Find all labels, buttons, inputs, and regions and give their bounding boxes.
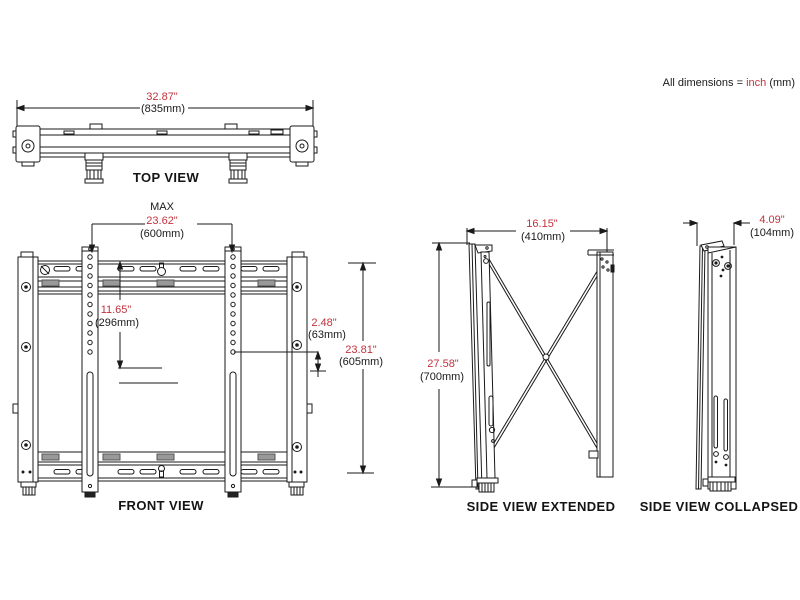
dim-top-width-mm: (835mm) [141, 103, 185, 115]
dim-col-depth-mm: (104mm) [750, 227, 794, 239]
dim-front-max-prefix: MAX [150, 201, 174, 213]
top-view-label: TOP VIEW [133, 172, 199, 184]
dim-ext-depth-inch: 16.15" [526, 218, 557, 230]
dim-ext-height-mm: (700mm) [420, 371, 464, 383]
technical-drawing-page: All dimensions = inch (mm) 32.87" (835mm… [0, 0, 800, 600]
dim-front-loweroffset-inch: 2.48" [311, 317, 336, 329]
dim-front-holeheight-inch: 11.65" [101, 304, 132, 316]
dim-ext-height-inch: 27.58" [427, 358, 458, 370]
dimensions-note: All dimensions = inch (mm) [663, 77, 795, 89]
dim-top-width-inch: 32.87" [146, 91, 177, 103]
dim-front-max-mm: (600mm) [140, 228, 184, 240]
dim-front-loweroffset-mm: (63mm) [308, 329, 346, 341]
dim-front-totalheight-inch: 23.81" [345, 344, 376, 356]
dim-ext-depth-mm: (410mm) [521, 231, 565, 243]
note-prefix: All dimensions = [663, 77, 746, 89]
dim-front-max-inch: 23.62" [146, 215, 177, 227]
side-view-collapsed-label: SIDE VIEW COLLAPSED [640, 501, 799, 513]
dim-col-depth-inch: 4.09" [759, 214, 784, 226]
side-view-collapsed-drawing [683, 221, 750, 492]
front-view-drawing [13, 224, 376, 497]
dim-front-holeheight-mm: (296mm) [95, 317, 139, 329]
note-unit: inch [746, 77, 766, 89]
front-view-label: FRONT VIEW [118, 500, 204, 512]
dim-front-totalheight-mm: (605mm) [339, 356, 383, 368]
side-view-extended-label: SIDE VIEW EXTENDED [467, 501, 616, 513]
note-suffix: (mm) [766, 77, 795, 89]
